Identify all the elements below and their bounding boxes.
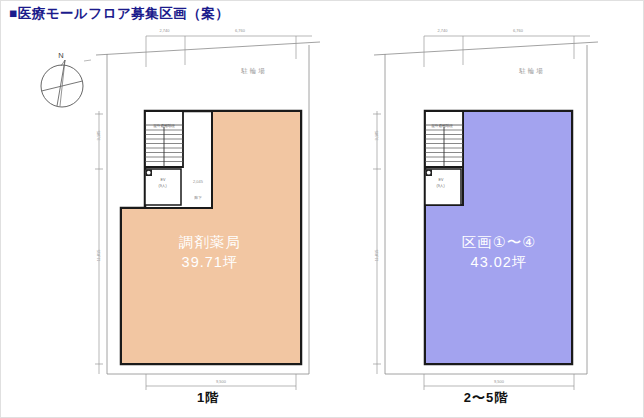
dim-side-lower: 11,815 [97,242,102,268]
stair-label: 屋外避難階段 [144,114,184,132]
compass-north-text: N [58,51,63,60]
dim-bottom: 9,500 [172,380,271,385]
page-title: ■医療モールフロア募集区画（案） [9,5,229,23]
elevator-label: EV(9人) [423,176,459,190]
dim-top-right: 6,760 [481,29,555,34]
bike-parking-label: 駐輪場 [492,67,572,74]
dim-side-upper: 3,185 [97,122,102,148]
tenant-area-label-upper: 区画①〜④ 43.02坪 [420,233,578,272]
floor-plan-1f: 駐輪場 屋外避難階段 EV(9人) 2,045 廊下 2,740 6,760 9… [94,29,322,418]
dim-side-lower: 11,815 [375,242,380,268]
floor-plan-1f-drawing [94,29,322,418]
tenant-name: 区画①〜④ [420,233,578,253]
tenant-size: 43.02坪 [420,253,578,273]
floor-plan-2-5f: 駐輪場 屋外避難階段 EV(9人) 2,740 6,760 9,500 3,18… [372,29,600,418]
corridor-label: 廊下 [189,196,207,201]
dim-bottom: 9,500 [450,380,549,385]
floor-label-1f: 1階 [94,391,322,406]
dim-side-upper: 3,185 [375,122,380,148]
stair-label: 屋外避難階段 [422,114,462,132]
tenant-size: 39.71坪 [124,253,296,273]
corridor-dim-label: 2,045 [189,180,207,185]
bike-parking-label: 駐輪場 [214,67,294,74]
dim-top-right: 6,760 [203,29,277,34]
tenant-area-label-1f: 調剤薬局 39.71坪 [124,233,296,272]
floor-label-2-5f: 2〜5階 [372,391,600,406]
tenant-name: 調剤薬局 [124,233,296,253]
dim-top-left: 2,740 [151,29,178,34]
compass: N [34,49,92,117]
compass-icon: N [34,49,92,113]
elevator-label: EV(9人) [145,176,181,190]
floor-plan-2-5f-drawing [372,29,600,418]
dim-top-left: 2,740 [429,29,456,34]
